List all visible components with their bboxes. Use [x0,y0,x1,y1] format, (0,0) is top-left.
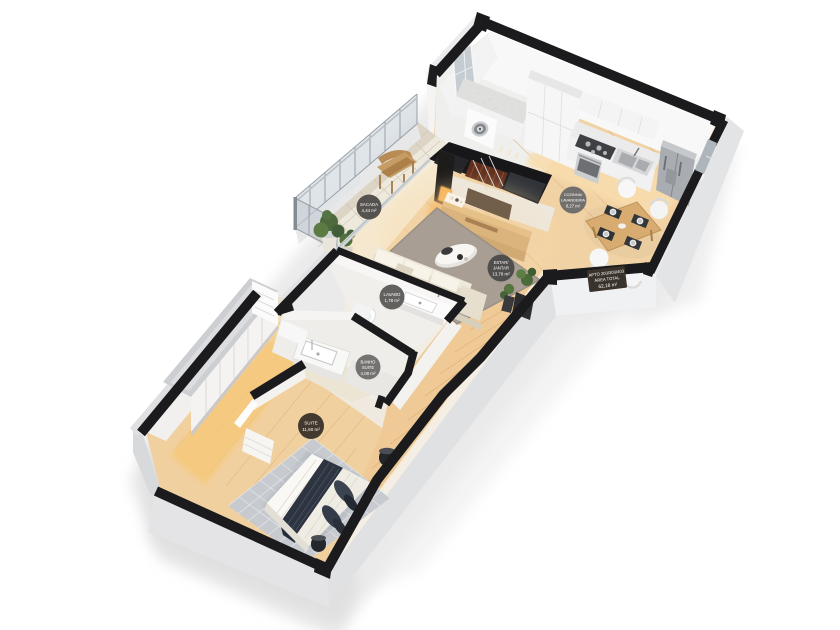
svg-text:8,27 m²: 8,27 m² [566,204,581,209]
svg-text:13,78 m²: 13,78 m² [492,272,510,277]
svg-text:SACADA: SACADA [360,202,378,207]
svg-text:SUITE: SUITE [362,365,375,370]
svg-text:SUITE: SUITE [304,421,318,426]
svg-text:LAVANDERIA: LAVANDERIA [561,198,585,203]
svg-text:COZINHA/: COZINHA/ [564,192,584,197]
svg-text:4,44 m²: 4,44 m² [362,208,377,213]
svg-text:4,08 m²: 4,08 m² [361,371,376,376]
svg-text:JANTAR: JANTAR [493,266,509,271]
svg-text:1,78 m²: 1,78 m² [385,298,400,303]
svg-text:BANHO: BANHO [361,360,377,365]
svg-text:LAVABO: LAVABO [384,292,402,297]
svg-text:11,60 m²: 11,60 m² [302,427,320,432]
svg-text:ESTAR/: ESTAR/ [494,260,510,265]
